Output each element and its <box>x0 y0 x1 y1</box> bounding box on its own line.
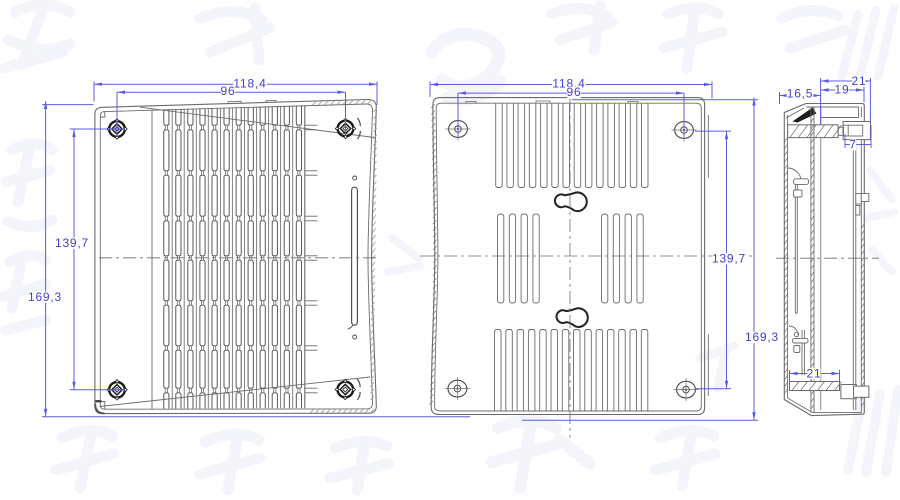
svg-text:16,5: 16,5 <box>787 87 814 101</box>
svg-text:21: 21 <box>807 367 822 381</box>
svg-text:139,7: 139,7 <box>712 252 746 266</box>
svg-text:139,7: 139,7 <box>55 236 89 250</box>
svg-text:7: 7 <box>849 140 856 152</box>
svg-text:96: 96 <box>221 84 236 98</box>
svg-text:169,3: 169,3 <box>745 330 779 344</box>
svg-text:19: 19 <box>835 83 850 97</box>
svg-text:118,4: 118,4 <box>233 76 266 90</box>
svg-text:96: 96 <box>567 85 582 99</box>
svg-text:21: 21 <box>852 74 867 88</box>
svg-text:169,3: 169,3 <box>28 290 62 304</box>
